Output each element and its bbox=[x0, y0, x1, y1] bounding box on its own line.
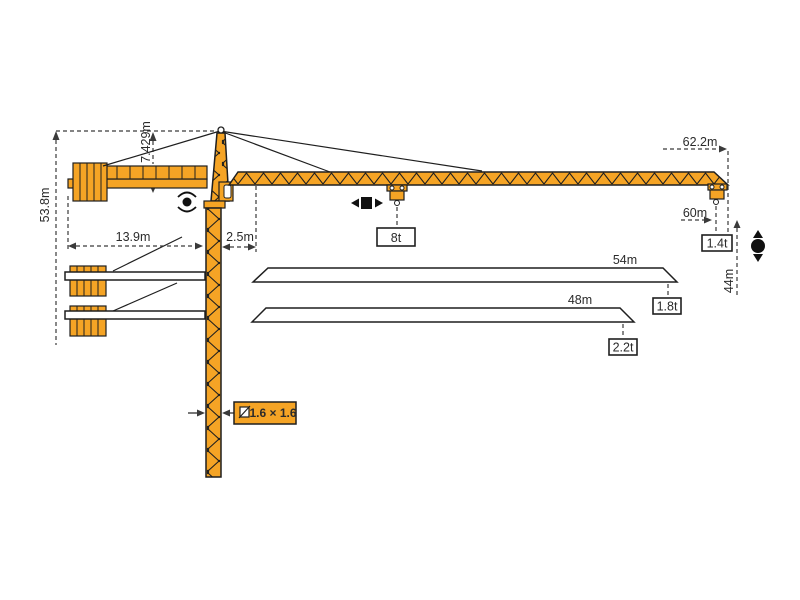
jib-tie-cable-short bbox=[220, 131, 330, 172]
right-arrow-icon bbox=[719, 146, 727, 153]
tower-top-height-label: 7.429m bbox=[139, 121, 153, 163]
right-arrow-icon bbox=[195, 243, 203, 250]
main-jib bbox=[229, 172, 728, 185]
turntable bbox=[204, 201, 225, 208]
dimension-under-hook: 44m bbox=[722, 220, 741, 296]
trolley-wheel-icon bbox=[720, 185, 724, 189]
counterjib-radius-label: 13.9m bbox=[116, 230, 151, 244]
dimension-jib-60: 60m 1.4t bbox=[681, 206, 732, 251]
hook-icon bbox=[714, 200, 719, 205]
pairing-leader-line bbox=[113, 283, 177, 311]
trolley-wheel-icon bbox=[710, 185, 714, 189]
jib-option-48: 48m 2.2t bbox=[252, 293, 637, 355]
counterweight-block bbox=[73, 163, 107, 201]
trolley-travel-icon bbox=[351, 197, 383, 209]
mast-section-callout: 1.6 × 1.6 bbox=[188, 402, 297, 424]
right-arrow-icon bbox=[248, 244, 256, 251]
jib-54-outline bbox=[253, 268, 677, 282]
left-arrow-icon bbox=[68, 243, 76, 250]
tip-load-48-label: 2.2t bbox=[613, 341, 634, 355]
apex-pulley-icon bbox=[218, 127, 224, 133]
left-arrow-icon bbox=[222, 244, 230, 251]
trolley-mid: 8t bbox=[377, 185, 415, 246]
cab-window bbox=[224, 185, 231, 198]
jib-48-outline bbox=[252, 308, 634, 322]
counterjib-tie-cable bbox=[103, 131, 220, 166]
trolley-wheel-icon bbox=[400, 186, 404, 190]
tip-load-54-label: 1.8t bbox=[657, 300, 678, 314]
mast-lattice bbox=[206, 208, 221, 477]
jib-60-label: 60m bbox=[683, 206, 707, 220]
jib-48-label: 48m bbox=[568, 293, 592, 307]
tip-load-60-label: 1.4t bbox=[707, 237, 728, 251]
diagram-canvas: 53.8m 7.429m bbox=[0, 0, 800, 600]
jib-tie-cable-long bbox=[220, 131, 482, 171]
counterweight-block bbox=[70, 266, 106, 296]
hook-block bbox=[390, 191, 404, 200]
slew-offset-label: 2.5m bbox=[226, 230, 254, 244]
counterjib-bar bbox=[65, 272, 205, 280]
trolley-tip bbox=[708, 184, 727, 205]
jib-lattice bbox=[229, 172, 728, 185]
hoisting-icon bbox=[751, 230, 765, 262]
max-load-label: 8t bbox=[391, 231, 402, 245]
counterjib bbox=[68, 163, 207, 201]
up-arrow-icon bbox=[734, 220, 741, 228]
max-radius-label: 62.2m bbox=[683, 135, 718, 149]
mast bbox=[206, 208, 221, 477]
total-height-label: 53.8m bbox=[38, 188, 52, 223]
up-arrow-icon bbox=[53, 131, 60, 140]
mast-section-label: 1.6 × 1.6 bbox=[249, 406, 296, 420]
under-hook-label: 44m bbox=[722, 269, 736, 293]
counterjib-bar bbox=[65, 311, 205, 319]
trolley-wheel-icon bbox=[390, 186, 394, 190]
hook-block bbox=[710, 190, 724, 199]
dimension-counterjib-radius: 13.9m bbox=[68, 196, 203, 252]
crane-dimension-diagram: 53.8m 7.429m bbox=[0, 0, 800, 600]
jib-option-54: 54m 1.8t bbox=[253, 253, 681, 314]
left-arrow-icon bbox=[222, 410, 230, 417]
jib-54-label: 54m bbox=[613, 253, 637, 267]
right-arrow-icon bbox=[197, 410, 205, 417]
hook-icon bbox=[395, 201, 400, 206]
slewing-icon bbox=[178, 193, 196, 212]
